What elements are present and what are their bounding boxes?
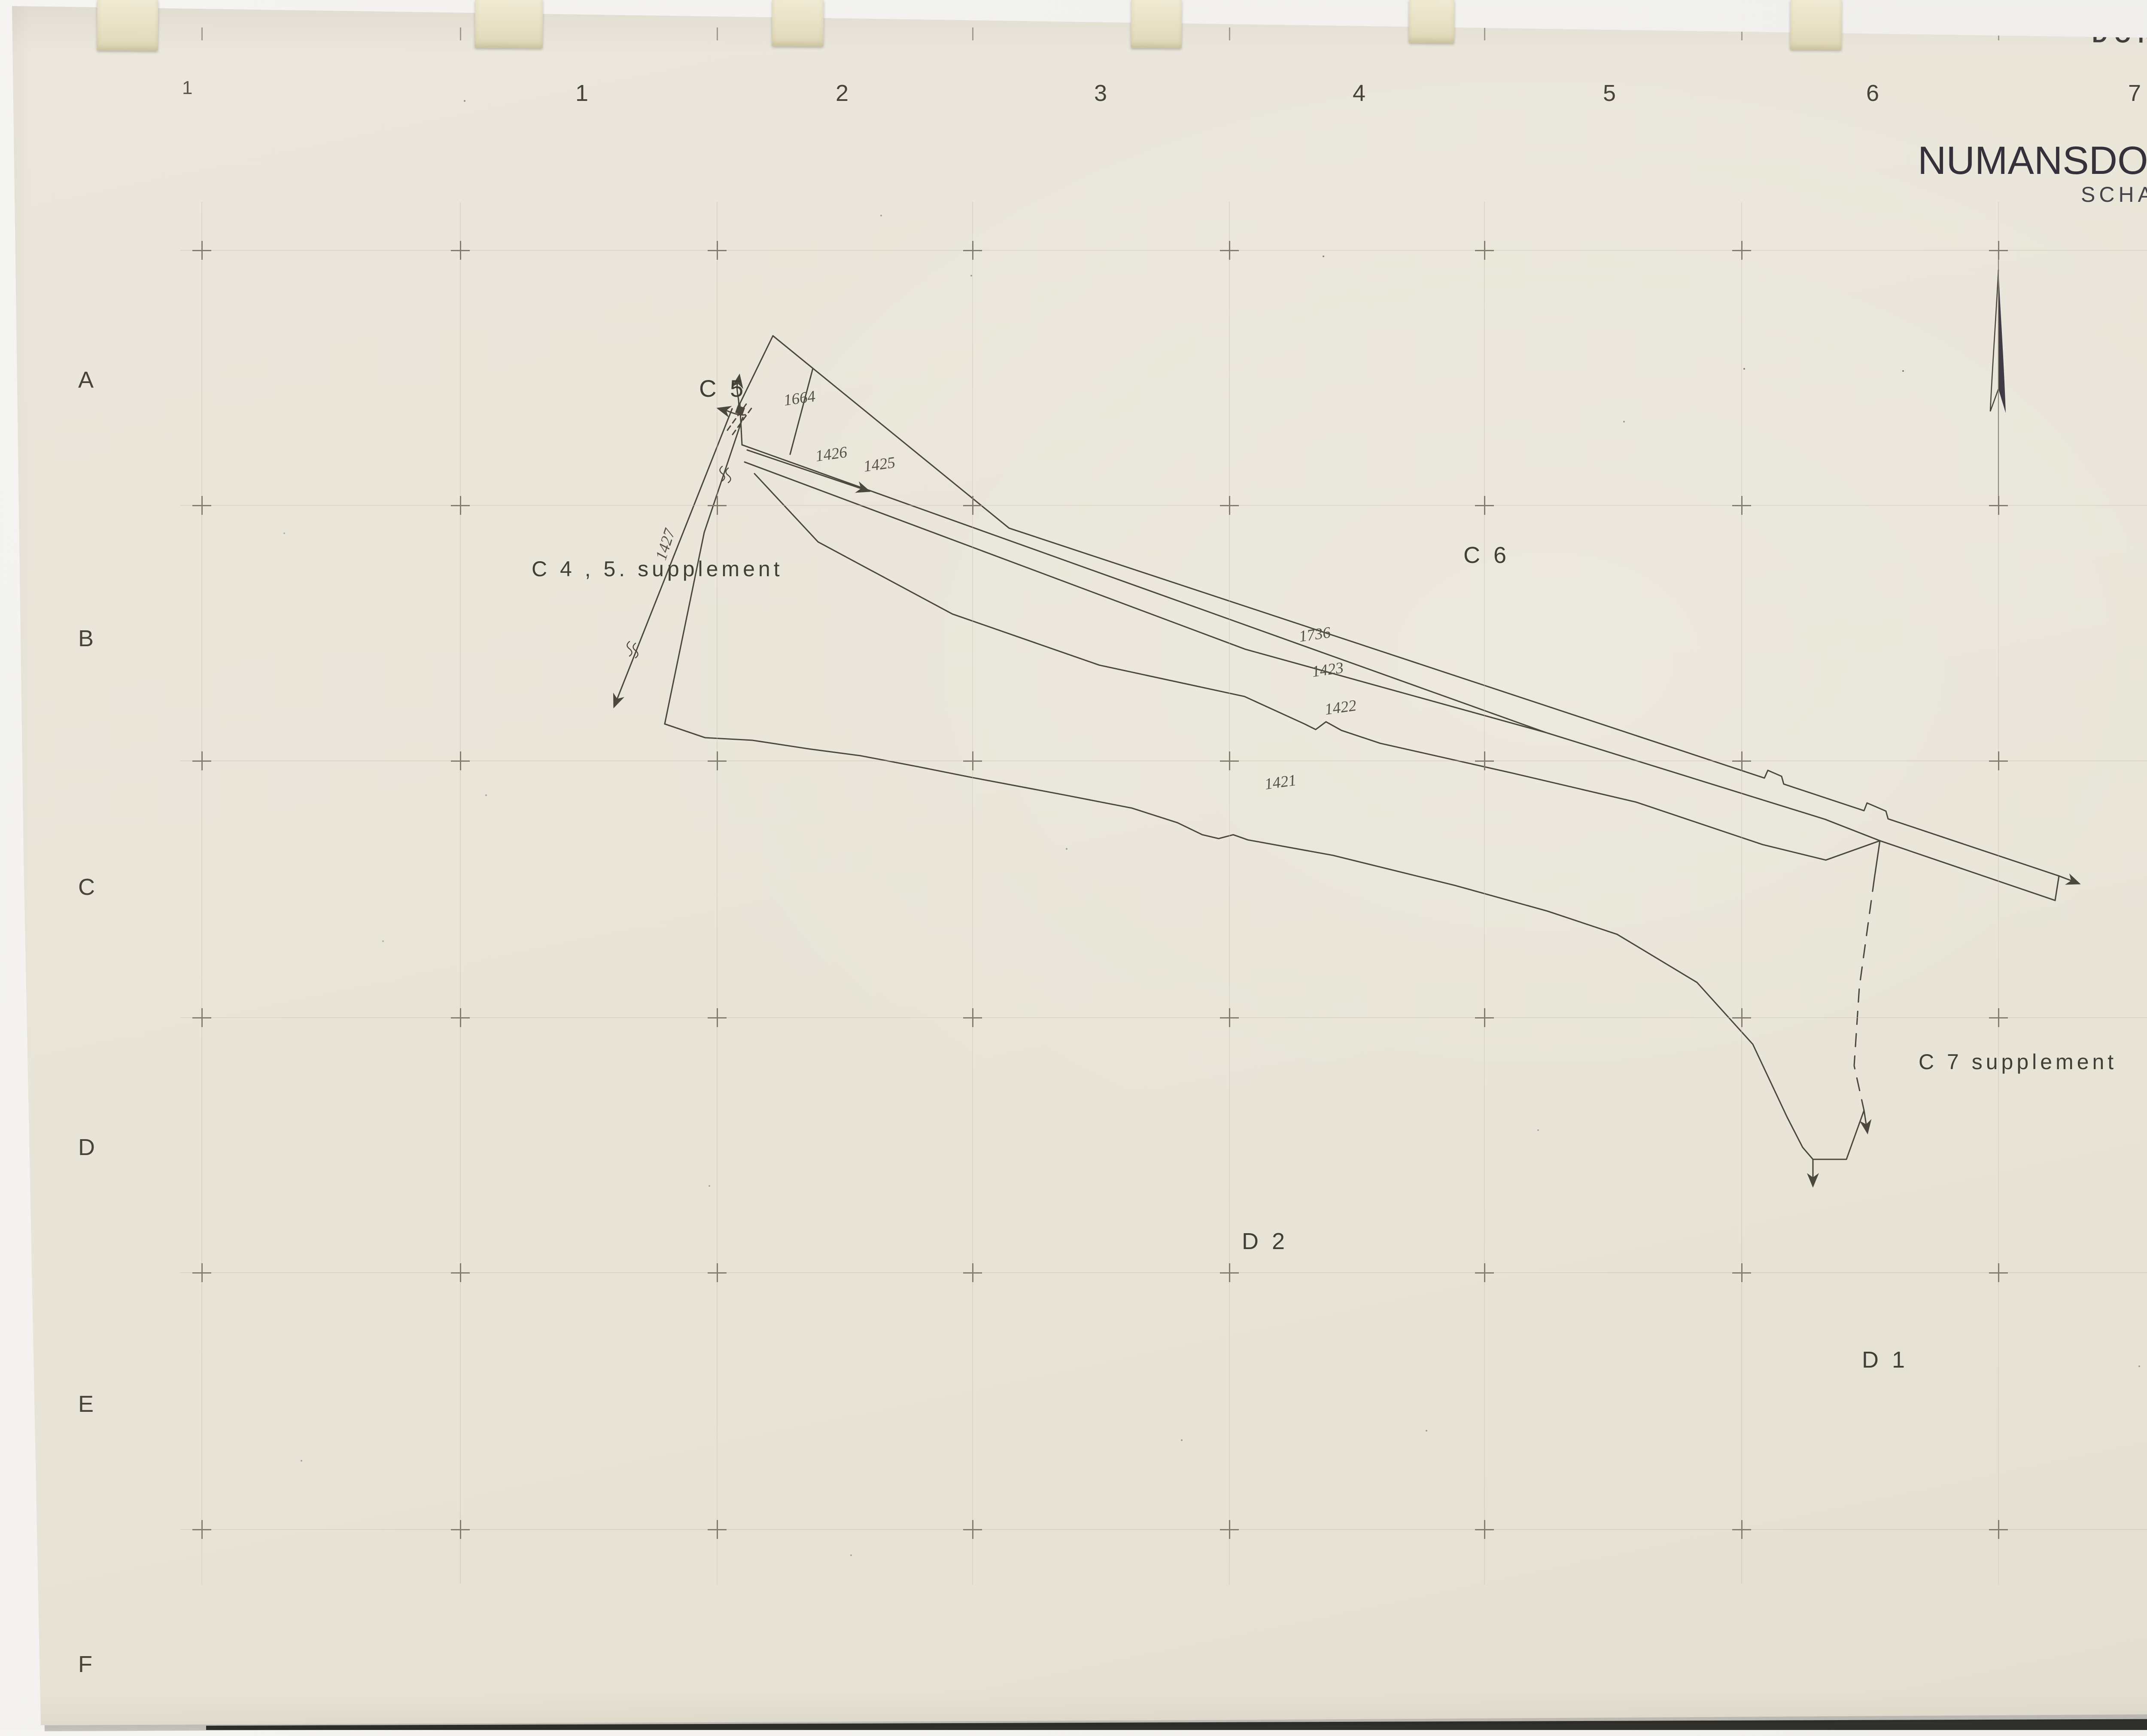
grid-cross xyxy=(451,241,470,260)
grid-cross xyxy=(192,1008,211,1027)
registration-tick xyxy=(1484,27,1485,40)
grid-cross xyxy=(1989,1520,2008,1539)
map-label-c6: C 6 xyxy=(1463,542,1510,569)
grid-hairline-col xyxy=(460,202,461,1584)
grid-hairline-row xyxy=(180,1272,2147,1273)
grid-cross xyxy=(451,751,470,770)
tape-tab-6 xyxy=(1790,0,1842,50)
grid-hairline-col xyxy=(972,202,973,1584)
grid-cross xyxy=(1989,241,2008,260)
grid-cross xyxy=(708,496,727,515)
grid-row-label-A: A xyxy=(78,367,94,393)
registration-tick xyxy=(201,27,203,40)
grid-cross xyxy=(963,1008,982,1027)
grid-cross xyxy=(1732,1520,1751,1539)
grid-cross xyxy=(963,496,982,515)
grid-cross xyxy=(1732,751,1751,770)
grid-cross xyxy=(708,751,727,770)
grid-cross xyxy=(1475,496,1494,515)
grid-hairline-row xyxy=(180,760,2147,761)
tape-tab-2 xyxy=(475,0,543,49)
grid-cross xyxy=(1989,496,2008,515)
grid-hairline-col xyxy=(717,202,718,1584)
grid-hairline-row xyxy=(180,250,2147,251)
map-sheet-paper: DORDRECHT 8 NOV. 1973 NUMANSDORP C 6 SUP… xyxy=(0,0,2147,1730)
grid-cross xyxy=(192,496,211,515)
grid-cross xyxy=(1989,1263,2008,1282)
grid-cross xyxy=(1475,1008,1494,1027)
grid-cross xyxy=(192,1263,211,1282)
grid-cross xyxy=(1989,1008,2008,1027)
grid-cross xyxy=(192,751,211,770)
grid-cross xyxy=(451,1008,470,1027)
grid-hairline-col xyxy=(1229,202,1230,1584)
grid-cross xyxy=(1475,1520,1494,1539)
grid-cross xyxy=(963,1263,982,1282)
grid-column-label-4: 4 xyxy=(1353,80,1365,106)
grid-cross xyxy=(192,1520,211,1539)
grid-hairline-col xyxy=(201,202,202,1584)
registration-tick xyxy=(1998,27,1999,40)
grid-cross xyxy=(451,496,470,515)
grid-cross xyxy=(1732,1008,1751,1027)
grid-cross xyxy=(1732,1263,1751,1282)
grid-cross xyxy=(963,1520,982,1539)
grid-cross xyxy=(1220,1520,1239,1539)
grid-hairline-col xyxy=(1998,202,1999,1584)
registration-tick xyxy=(972,27,973,40)
tape-tab-5 xyxy=(1409,0,1455,43)
paper-specks xyxy=(0,0,2,2)
grid-column-label-7: 7 xyxy=(2128,80,2141,106)
grid-hairline-col xyxy=(1741,202,1742,1584)
grid-row-label-D: D xyxy=(78,1134,95,1161)
tape-tab-3 xyxy=(772,0,824,46)
grid-cross xyxy=(1220,1008,1239,1027)
grid-column-label-5: 5 xyxy=(1603,80,1616,106)
grid-cross xyxy=(708,1008,727,1027)
grid-row-label-F: F xyxy=(78,1651,92,1678)
grid-cross xyxy=(1732,241,1751,260)
grid-cross xyxy=(451,1520,470,1539)
grid-row-label-B: B xyxy=(78,625,94,652)
stray-corner-mark: 1 xyxy=(182,77,192,99)
grid-cross xyxy=(1220,496,1239,515)
grid-cross xyxy=(451,1263,470,1282)
map-label-c45: C 4 , 5. supplement xyxy=(532,556,783,581)
grid-cross xyxy=(708,241,727,260)
grid-cross xyxy=(963,241,982,260)
grid-cross xyxy=(1220,751,1239,770)
tape-tab-1 xyxy=(97,0,158,51)
grid-hairline-row xyxy=(180,1017,2147,1018)
grid-hairline-col xyxy=(1484,202,1485,1584)
grid-cross xyxy=(1475,241,1494,260)
tape-tab-4 xyxy=(1131,0,1182,48)
grid-column-label-3: 3 xyxy=(1094,80,1107,106)
grid-cross xyxy=(1989,751,2008,770)
map-label-d2: D 2 xyxy=(1242,1228,1288,1255)
grid-cross xyxy=(192,241,211,260)
map-label-d1: D 1 xyxy=(1862,1347,1908,1373)
grid-hairline-row xyxy=(180,505,2147,506)
grid-column-label-6: 6 xyxy=(1866,80,1879,106)
registration-tick xyxy=(1229,27,1230,40)
grid-cross xyxy=(1220,1263,1239,1282)
grid-cross xyxy=(963,751,982,770)
grid-cross xyxy=(708,1520,727,1539)
grid-cross xyxy=(708,1263,727,1282)
grid-hairline-row xyxy=(180,1529,2147,1530)
grid-cross xyxy=(1475,1263,1494,1282)
registration-tick xyxy=(717,27,718,40)
grid-cross xyxy=(1732,496,1751,515)
grid-column-label-2: 2 xyxy=(836,80,848,106)
map-label-c7: C 7 supplement xyxy=(1919,1049,2117,1074)
grid-row-label-E: E xyxy=(78,1391,94,1417)
grid-cross xyxy=(1475,751,1494,770)
scan-stage: DORDRECHT 8 NOV. 1973 NUMANSDORP C 6 SUP… xyxy=(0,0,2147,1730)
grid-cross xyxy=(1220,241,1239,260)
grid-row-label-C: C xyxy=(78,874,95,900)
registration-tick xyxy=(460,27,461,40)
registration-tick xyxy=(1741,27,1743,40)
signature-strokes xyxy=(0,0,2147,1730)
grid-column-label-1: 1 xyxy=(575,80,588,106)
map-label-c5: C 5 xyxy=(699,374,747,402)
